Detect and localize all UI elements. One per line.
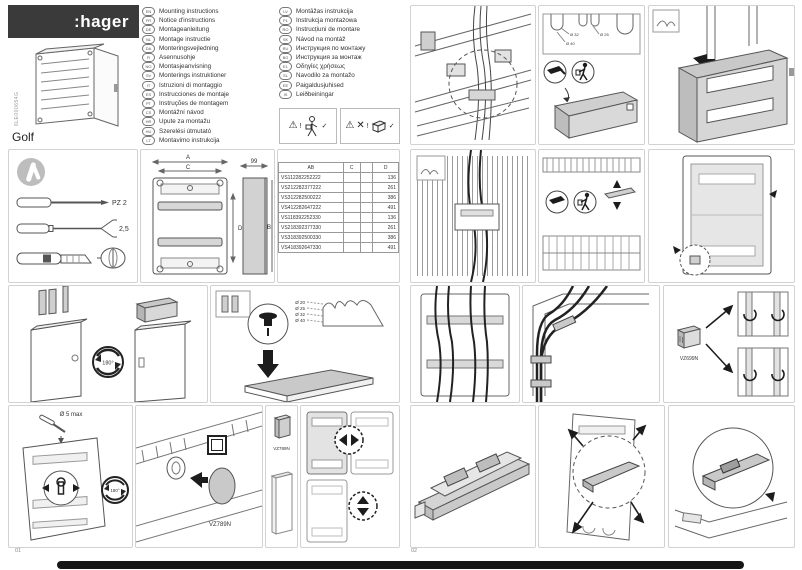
language-code-badge: PL: [279, 16, 292, 25]
dimension-drawing-panel: A C D 99 B: [140, 149, 275, 283]
language-item: FRNotice d'instructions: [142, 16, 275, 25]
warning-triangle-icon: ⚠: [345, 121, 354, 131]
table-row: VS318392500330386: [279, 233, 399, 243]
language-code-badge: LT: [142, 136, 155, 145]
language-label: Upute za montažu: [159, 118, 210, 125]
table-header-row: AB C D: [279, 163, 399, 173]
enclosure-cover-illustration: 6LE000654G: [8, 40, 139, 130]
vz789n-label: VZ789N: [273, 446, 290, 451]
language-label: Montage instructie: [159, 36, 210, 43]
language-label: Istruzioni di montaggio: [159, 82, 222, 89]
language-item: EEPaigaldusjuhised: [279, 81, 400, 90]
bottom-bar: [57, 561, 744, 569]
language-code-badge: FI: [142, 53, 155, 62]
vz699n-label: VZ699N: [680, 356, 699, 362]
svg-text:D: D: [238, 226, 243, 232]
svg-text:Ø 20: Ø 20: [295, 300, 305, 305]
door-reversal-panel: 180°: [8, 285, 208, 403]
rail-detail-circle: [573, 436, 645, 508]
knockout-plug-detail-icon: [248, 304, 288, 344]
language-item: RUИнструкция по монтажу: [279, 44, 400, 53]
ref-cell: VS412282647222: [279, 203, 344, 213]
document-code: 6LE000654G: [14, 92, 20, 126]
svg-text:2,5: 2,5: [119, 226, 129, 233]
d-cell: 491: [373, 203, 399, 213]
svg-text:C: C: [186, 165, 191, 171]
hager-logo: :hager: [8, 5, 139, 38]
language-code-badge: IS: [279, 90, 292, 99]
language-label: Szerelési útmutató: [159, 128, 211, 135]
language-code-badge: ES: [142, 90, 155, 99]
language-label: Montageanleitung: [159, 26, 209, 33]
enclosure-outline: [421, 294, 509, 396]
language-label: Instrucțiuni de montare: [296, 26, 360, 33]
language-label: Instrucciones de montaje: [159, 91, 229, 98]
language-code-badge: FR: [142, 16, 155, 25]
rail-assembly-detail-panel: [668, 405, 795, 548]
language-label: Monteringsvejledning: [159, 45, 219, 52]
ref-cell: VS418392647330: [279, 243, 344, 253]
language-label: Montasjeanvisning: [159, 63, 211, 70]
utility-knife-icon: [17, 253, 91, 264]
wall-mounting-panel: Ø 5 max 180°: [8, 405, 133, 548]
language-code-badge: DE: [142, 25, 155, 34]
d-cell: 136: [373, 213, 399, 223]
rail-position-detail-panel: [538, 405, 665, 548]
language-item: SKNávod na montáž: [279, 35, 400, 44]
ref-cell: VS312282500222: [279, 193, 344, 203]
svg-text:Ø 25: Ø 25: [295, 306, 305, 311]
hole-saw-icon: [97, 248, 125, 268]
enclosure-joining-panel: [300, 405, 400, 548]
ref-cell: VS212282377222: [279, 183, 344, 193]
language-label: Οδηγίες χρήσεως: [296, 63, 345, 70]
language-label: Instrukcja montażowa: [296, 17, 357, 24]
rotate-180-icon: 180°: [93, 347, 123, 377]
svg-text:Ø 5 max: Ø 5 max: [60, 412, 83, 418]
language-label: Instruções de montagem: [159, 100, 228, 107]
language-code-badge: PT: [142, 99, 155, 108]
enclosure-side-view: [243, 178, 267, 274]
grommet-hole-icon: [167, 457, 185, 479]
language-label: Asennusohje: [159, 54, 195, 61]
door-block-icon: [137, 298, 177, 322]
svg-text:B: B: [267, 225, 271, 231]
exclamation-icon: !: [300, 123, 302, 130]
svg-text:Ø 25: Ø 25: [600, 32, 609, 37]
dispose-person-icon: [572, 61, 594, 83]
language-item: HUSzerelési útmutató: [142, 126, 275, 135]
vz699n-accessory-panel: VZ699N: [663, 285, 795, 403]
language-item: DAMonteringsvejledning: [142, 44, 275, 53]
trunking-entry-panel: [648, 5, 795, 145]
col-header-ab: AB: [279, 163, 344, 173]
svg-text:A: A: [186, 155, 190, 161]
strap-diagram-bottom: [738, 348, 788, 396]
svg-text:PZ 2: PZ 2: [112, 200, 127, 207]
ref-cell: VS118392252330: [279, 213, 344, 223]
language-label: Monterings instruktioner: [159, 72, 226, 79]
svg-text:180°: 180°: [102, 361, 113, 367]
press-down-arrow: [257, 350, 279, 378]
language-item: SVMonterings instruktioner: [142, 71, 275, 80]
svg-text:Ø 40: Ø 40: [295, 318, 305, 323]
language-item: ROInstrucțiuni de montare: [279, 25, 400, 34]
language-label: Montážní návod: [159, 109, 204, 116]
hinge-parts-icon: [39, 286, 68, 315]
language-label: Návod na montáž: [296, 36, 345, 43]
join-vertical-icon: [349, 492, 377, 520]
door-latch-detail-panel: [648, 149, 795, 283]
language-label: Mounting instructions: [159, 8, 219, 15]
person-reading-icon: [304, 115, 320, 137]
svg-text:99: 99: [251, 159, 258, 165]
d-cell: 491: [373, 243, 399, 253]
language-item: NOMontasjeanvisning: [142, 62, 275, 71]
warning-no-lift-box: ⚠ ✕ ! ✓: [340, 108, 400, 144]
check-icon: ✓: [322, 123, 328, 130]
language-code-badge: SL: [279, 71, 292, 80]
language-code-badge: EN: [142, 7, 155, 16]
language-item: ELΟδηγίες χρήσεως: [279, 62, 400, 71]
language-item: CSMontážní návod: [142, 108, 275, 117]
svg-text:Ø 32: Ø 32: [570, 32, 579, 37]
cable-strap-routing-panel: [522, 285, 660, 403]
table-row: VS212282377222261: [279, 183, 399, 193]
language-item: BGИнструкция за монтаж: [279, 53, 400, 62]
d-cell: 136: [373, 173, 399, 183]
language-item: ESInstrucciones de montaje: [142, 90, 275, 99]
d-cell: 261: [373, 223, 399, 233]
ref-cell: VS318392500330: [279, 233, 344, 243]
pointer-arrows: [706, 306, 732, 372]
cutter-icon: [544, 61, 566, 83]
col-header-d: D: [373, 163, 399, 173]
language-item: ENMounting instructions: [142, 7, 275, 16]
language-code-badge: EL: [279, 62, 292, 71]
language-code-badge: SV: [142, 71, 155, 80]
language-label: Инструкция по монтажу: [296, 45, 365, 52]
language-code-badge: HU: [142, 127, 155, 136]
vz789n-label: VZ789N: [209, 522, 231, 528]
svg-text:180°: 180°: [110, 488, 120, 493]
square-knockout-icon: [208, 436, 226, 454]
language-label: Navodilo za montažo: [296, 72, 355, 79]
language-item: DEMontageanleitung: [142, 25, 275, 34]
terminal-rail-assembly-panel: [410, 405, 536, 548]
language-item: NLMontage instructie: [142, 35, 275, 44]
cut-strip-panel: [538, 149, 645, 283]
vz789n-insertion-panel: VZ789N: [135, 405, 263, 548]
language-label: Paigaldusjuhised: [296, 82, 344, 89]
enclosure-top-face-icon: [245, 370, 373, 402]
insert-arrow: [190, 472, 208, 488]
vz789n-plug-icon: [209, 468, 235, 504]
language-item: LTMontavimo instrukcija: [142, 136, 275, 145]
language-code-badge: LV: [279, 7, 292, 16]
warning-triangle-icon: ⚠: [289, 121, 298, 131]
perforated-strip-icon: [543, 158, 640, 172]
reference-table-panel: AB C D VS112282252222136 VS2122823772222…: [277, 149, 400, 283]
box-icon: [371, 119, 387, 133]
enclosure-with-cover-icon: [679, 50, 794, 142]
hager-logo-text: :hager: [74, 12, 129, 32]
table-row: VS418392647330491: [279, 243, 399, 253]
membrane-section-icon: Ø 20 Ø 25 Ø 32 Ø 40: [295, 300, 383, 326]
svg-text:Ø 40: Ø 40: [566, 41, 575, 46]
ref-cell: VS218392377330: [279, 223, 344, 233]
language-item: PTInstruções de montagem: [142, 99, 275, 108]
enclosure-drawing-icon: [8, 40, 139, 130]
ref-cell: VS112282252222: [279, 173, 344, 183]
language-label: Montavimo instrukcija: [159, 137, 220, 144]
language-list-col1: ENMounting instructions FRNotice d'instr…: [142, 7, 275, 147]
table-row: VS118392252330136: [279, 213, 399, 223]
language-code-badge: BG: [279, 53, 292, 62]
language-item: SLNavodilo za montažo: [279, 71, 400, 80]
vz789n-accessory-panel: VZ789N: [265, 405, 298, 548]
language-item: ITIstruzioni di montaggio: [142, 81, 275, 90]
flat-screwdriver-icon: 2,5: [17, 220, 129, 237]
reference-table: AB C D VS112282252222136 VS2122823772222…: [278, 162, 399, 253]
language-label: Leiðbeiningar: [296, 91, 334, 98]
table-row: VS112282252222136: [279, 173, 399, 183]
enclosure-left-icon: [31, 319, 87, 402]
join-horizontal-icon: [335, 426, 363, 454]
col-header-c: C: [343, 163, 360, 173]
rail-detail-circle: [693, 428, 773, 508]
table-row: VS412282647222491: [279, 203, 399, 213]
language-item: LVMontāžas instrukcija: [279, 7, 400, 16]
language-code-badge: IT: [142, 81, 155, 90]
dispose-person-icon: [574, 191, 596, 213]
language-code-badge: SK: [279, 35, 292, 44]
language-item: HRUpute za montažu: [142, 117, 275, 126]
cutter-icon: [546, 191, 568, 213]
pozidriv-screwdriver-icon: PZ 2: [17, 198, 127, 207]
language-code-badge: EE: [279, 81, 292, 90]
d-cell: 386: [373, 233, 399, 243]
cable-clamp-detail-panel: [410, 5, 536, 145]
interior-structure-drawing: [415, 6, 531, 140]
exclamation-icon: !: [367, 123, 369, 130]
enclosure-front-view: [153, 178, 227, 274]
inset-icon: [653, 10, 679, 32]
vz699n-part-icon: [678, 326, 700, 348]
product-name: Golf: [12, 130, 34, 144]
table-row: VS312282500222386: [279, 193, 399, 203]
required-tools-panel: PZ 2 2,5: [8, 149, 138, 283]
language-code-badge: NO: [142, 62, 155, 71]
trim-piece-icon: [605, 180, 635, 210]
cable-routing-panel: [410, 285, 520, 403]
language-label: Notice d'instructions: [159, 17, 215, 24]
language-list-col2: LVMontāžas instrukcija PLInstrukcja mont…: [279, 7, 400, 103]
table-row: VS218392377330261: [279, 223, 399, 233]
perforated-strip-bottom-icon: [543, 236, 640, 270]
din-rail-assembly-icon: [415, 452, 529, 520]
language-label: Инструкция за монтаж: [296, 54, 362, 61]
language-item: ISLeiðbeiningar: [279, 90, 400, 99]
language-item: FIAsennusohje: [142, 53, 275, 62]
flush-mount-wall-panel: [410, 149, 536, 283]
col-header-blank: [360, 163, 373, 173]
language-code-badge: CS: [142, 108, 155, 117]
check-icon: ✓: [389, 123, 395, 130]
page-number-left: 01: [15, 548, 21, 554]
top-knockout-panel: Ø 20 Ø 25 Ø 32 Ø 40: [210, 285, 400, 403]
warning-read-instructions-box: ⚠ ! ✓: [279, 108, 337, 144]
gland-plate-panel: Ø 32 Ø 40 Ø 25: [538, 5, 645, 145]
d-cell: 261: [373, 183, 399, 193]
page-number-right: 02: [411, 548, 417, 554]
strap-diagram-top: [738, 292, 788, 336]
language-code-badge: NL: [142, 35, 155, 44]
cross-icon: ✕: [356, 121, 364, 131]
d-cell: 386: [373, 193, 399, 203]
language-code-badge: RU: [279, 44, 292, 53]
language-label: Montāžas instrukcija: [296, 8, 353, 15]
language-item: PLInstrukcja montażowa: [279, 16, 400, 25]
vz789n-part-icon: [275, 415, 290, 438]
enclosure-right-icon: [135, 321, 191, 402]
language-code-badge: DA: [142, 44, 155, 53]
language-code-badge: HR: [142, 117, 155, 126]
screw-icon: [39, 414, 65, 444]
svg-text:Ø 32: Ø 32: [295, 312, 305, 317]
language-code-badge: RO: [279, 25, 292, 34]
detail-arrow: [765, 492, 775, 502]
knockout-strip-icon: Ø 32 Ø 40 Ø 25: [543, 14, 640, 54]
rotate-180-icon: 180°: [102, 477, 128, 503]
